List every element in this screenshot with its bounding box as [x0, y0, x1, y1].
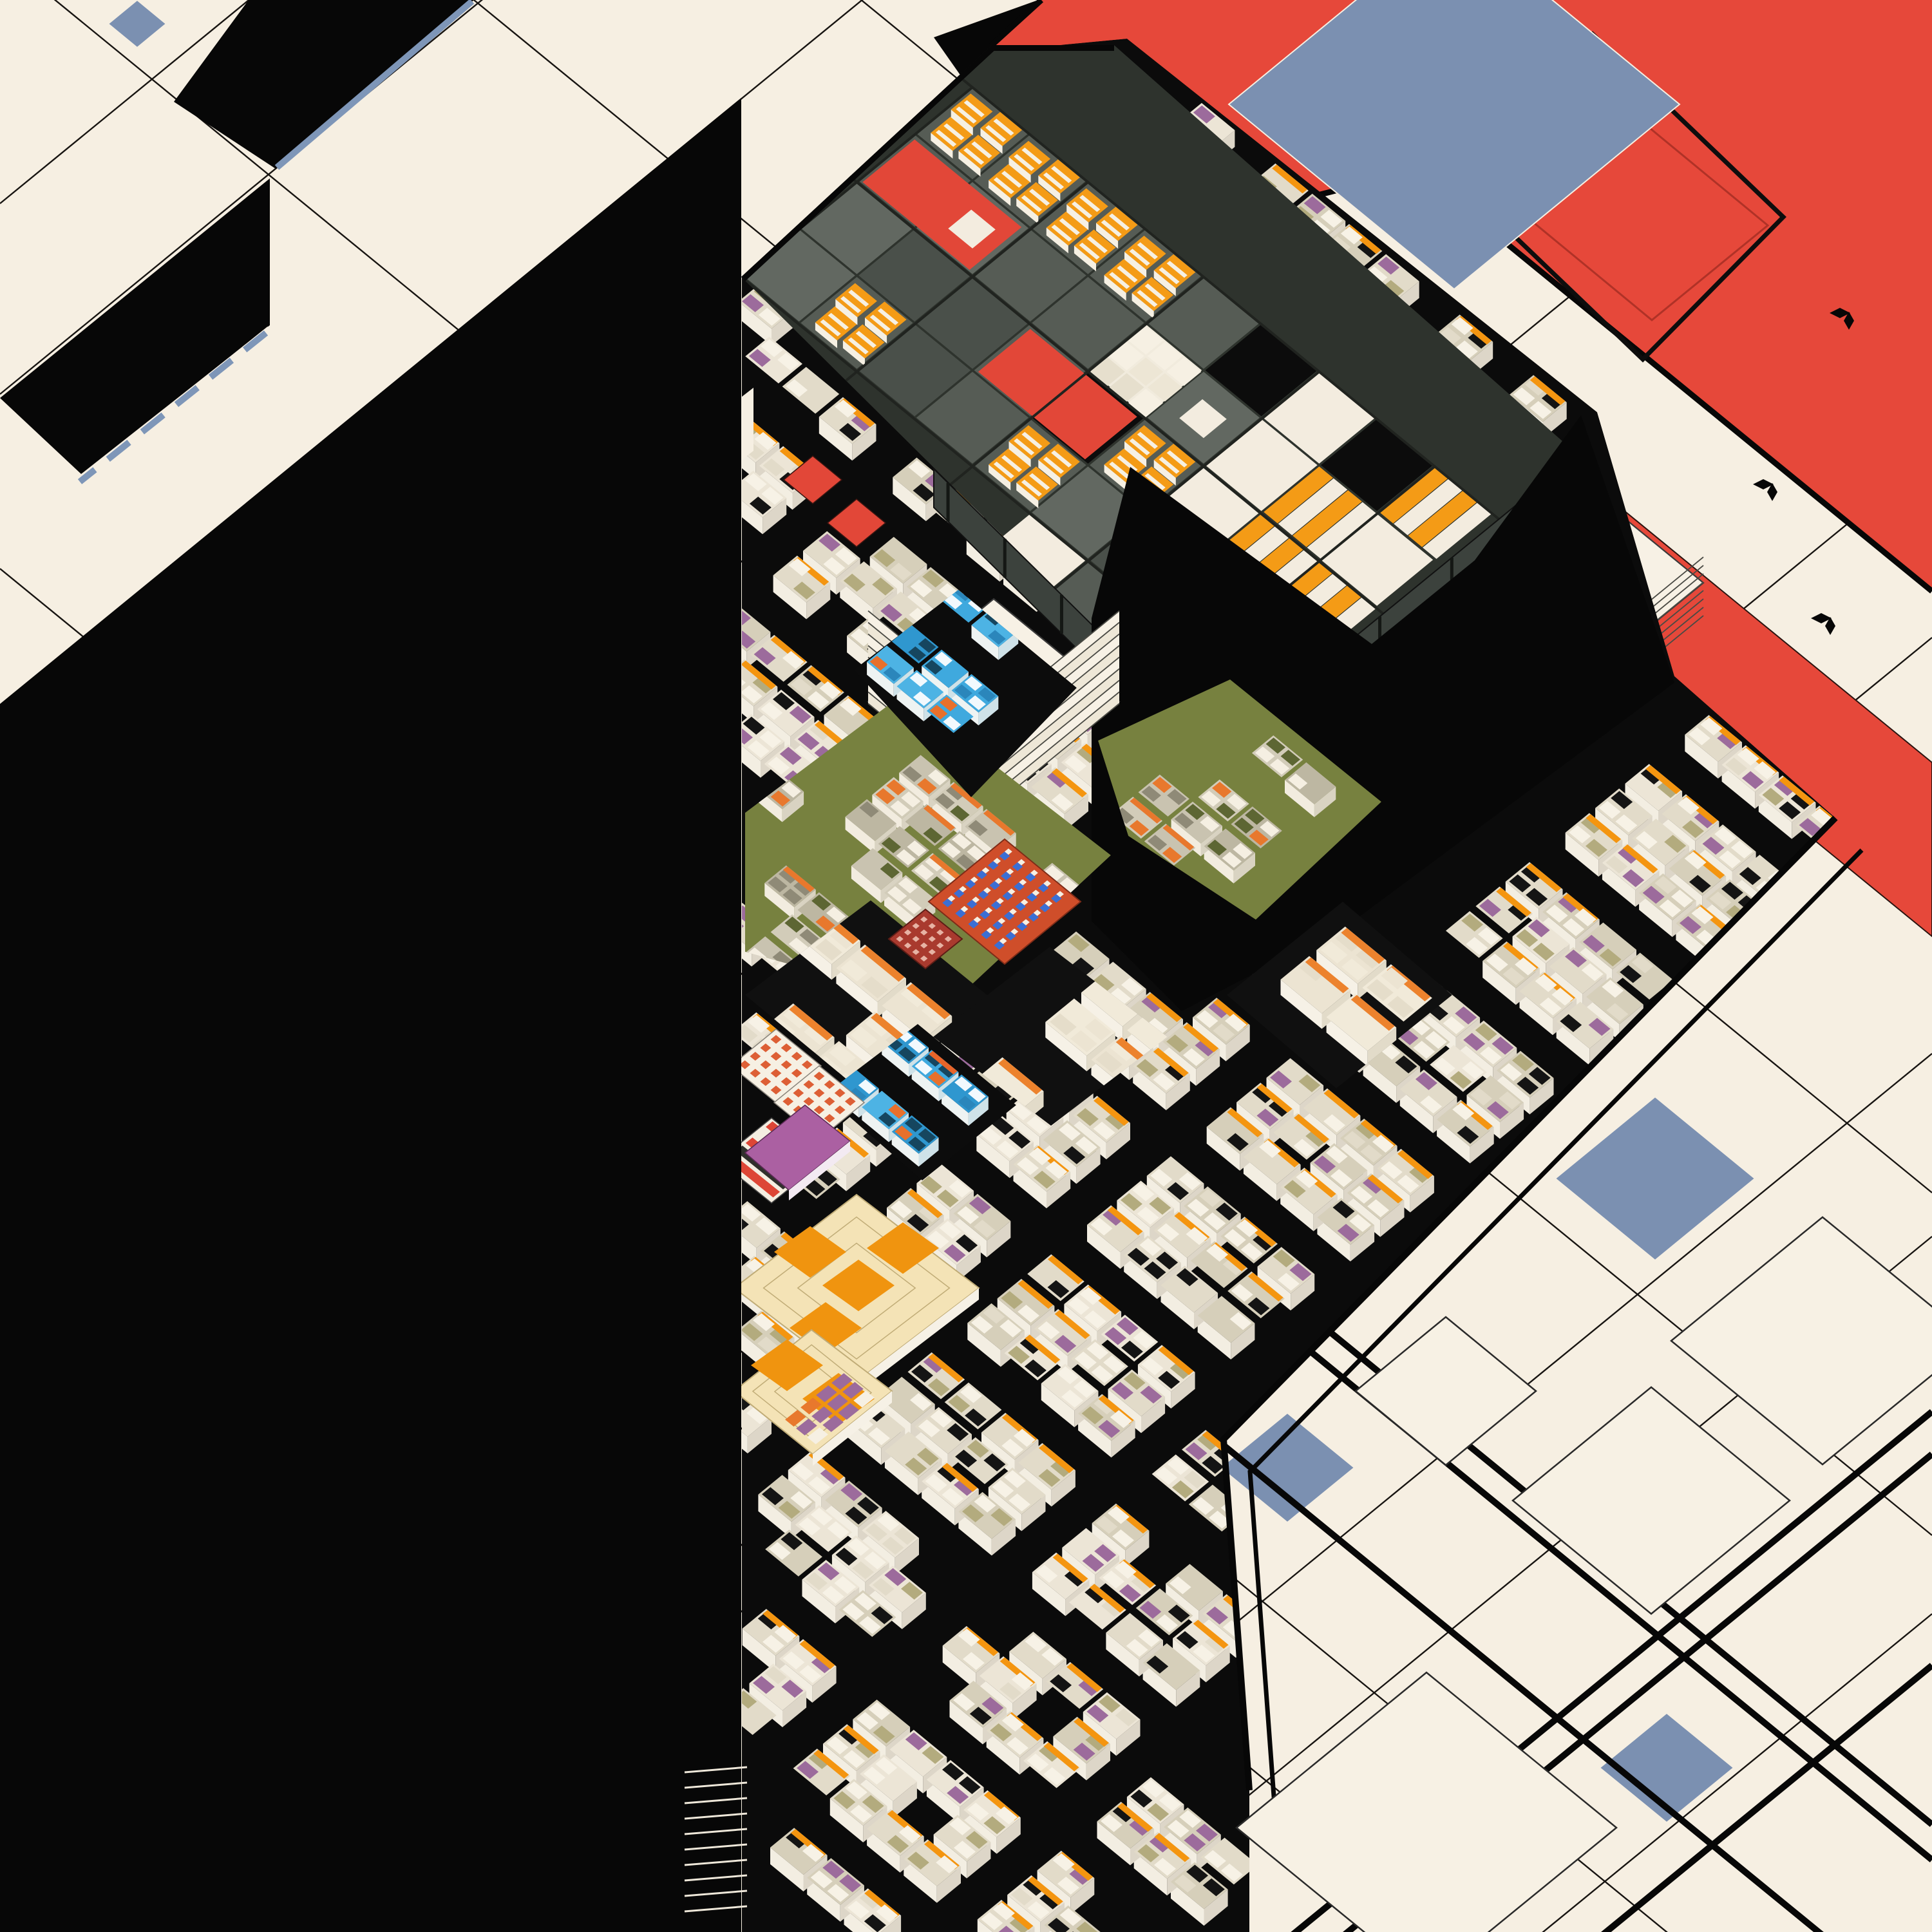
artwork-root: [0, 0, 1932, 1932]
artwork-canvas: [0, 0, 1932, 1932]
